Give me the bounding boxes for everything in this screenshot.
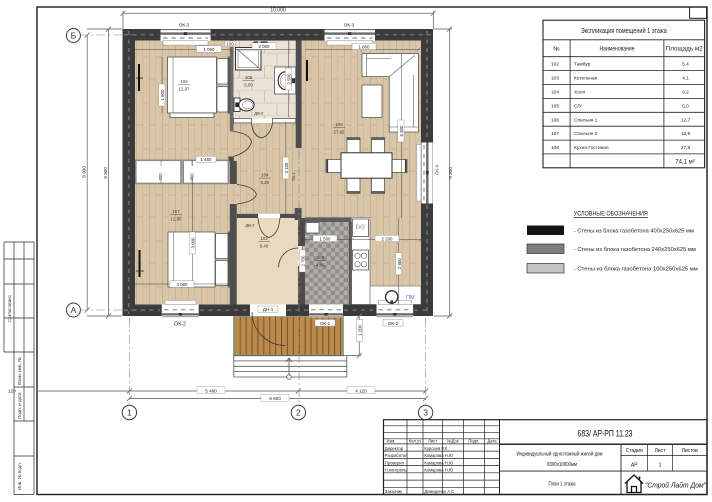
svg-text:1: 1	[127, 408, 132, 418]
svg-text:Котельная: Котельная	[574, 76, 598, 82]
svg-text:ОК-2: ОК-2	[174, 322, 186, 328]
svg-text:2 200: 2 200	[382, 236, 394, 241]
svg-text:- Стены из блока газобетона 4: - Стены из блока газобетона 400х250х625 …	[574, 228, 695, 234]
svg-text:3 060: 3 060	[177, 282, 189, 287]
svg-text:Проверил: Проверил	[385, 460, 405, 465]
svg-text:ДН-1: ДН-1	[263, 307, 274, 312]
svg-text:1 450: 1 450	[201, 157, 213, 162]
svg-text:4 120: 4 120	[355, 388, 367, 393]
svg-text:Листов: Листов	[682, 448, 699, 454]
svg-text:9 300: 9 300	[448, 167, 453, 179]
svg-text:Лист: Лист	[655, 448, 667, 454]
svg-text:3 900: 3 900	[190, 237, 195, 249]
svg-text:683/ АР-РП 11.23: 683/ АР-РП 11.23	[578, 429, 633, 439]
svg-text:Тамбур: Тамбур	[574, 62, 591, 68]
svg-text:С/У: С/У	[574, 103, 583, 109]
svg-text:2 500: 2 500	[287, 73, 292, 85]
svg-text:Холл: Холл	[574, 90, 586, 96]
svg-text:12,7: 12,7	[681, 117, 691, 123]
svg-text:27,82: 27,82	[334, 130, 346, 135]
svg-text:Экспликация помещений 1 этажа: Экспликация помещений 1 этажа	[581, 27, 667, 35]
svg-text:Комарова Н.Ю: Комарова Н.Ю	[424, 453, 453, 458]
svg-text:9 600: 9 600	[269, 396, 281, 401]
svg-text:4,05: 4,05	[316, 263, 325, 268]
svg-text:Стадия: Стадия	[626, 448, 643, 454]
svg-text:4,1: 4,1	[682, 76, 689, 82]
svg-text:6,20: 6,20	[261, 180, 270, 185]
svg-text:План 1 этажа: План 1 этажа	[549, 482, 576, 488]
svg-text:3: 3	[423, 408, 428, 418]
svg-text:103: 103	[551, 76, 559, 82]
svg-text:Согласовано: Согласовано	[7, 294, 12, 322]
svg-text:ОК-1: ОК-1	[320, 321, 331, 326]
svg-text:ПМ: ПМ	[406, 295, 415, 301]
svg-text:УСЛОВНЫЕ ОБОЗНАЧЕНИЯ: УСЛОВНЫЕ ОБОЗНАЧЕНИЯ	[574, 211, 648, 218]
svg-text:108: 108	[551, 145, 559, 151]
svg-text:104: 104	[261, 173, 269, 178]
svg-text:2 800: 2 800	[397, 258, 402, 270]
svg-text:1: 1	[659, 463, 662, 469]
svg-text:ОК-3: ОК-3	[179, 23, 190, 28]
svg-text:- Стены из блока газобетона: - Стены из блока газобетона 240х250х625 …	[574, 247, 697, 253]
svg-text:9300х10000мм: 9300х10000мм	[547, 462, 577, 468]
svg-text:12,97: 12,97	[179, 87, 191, 92]
svg-text:2 700: 2 700	[300, 255, 305, 267]
svg-text:1 200: 1 200	[358, 324, 363, 336]
svg-text:74,1 м²: 74,1 м²	[675, 160, 694, 166]
svg-text:Лист: Лист	[428, 438, 437, 443]
svg-text:Индивидуальный одноэтажный жил: Индивидуальный одноэтажный жилой дом	[517, 451, 603, 458]
svg-text:ОК-4: ОК-4	[435, 164, 440, 175]
svg-text:107: 107	[551, 131, 559, 137]
svg-text:27,8: 27,8	[681, 145, 691, 151]
svg-text:Разработал: Разработал	[385, 453, 408, 458]
svg-text:104: 104	[551, 90, 559, 96]
svg-text:Инв. № подл.: Инв. № подл.	[17, 462, 22, 490]
svg-text:1 060: 1 060	[204, 47, 216, 52]
svg-text:1 800: 1 800	[359, 44, 371, 49]
svg-text:9 300: 9 300	[103, 167, 108, 179]
svg-text:"Строй Лайт Дом": "Строй Лайт Дом"	[645, 482, 706, 490]
svg-text:2 000: 2 000	[259, 44, 271, 49]
svg-text:12,95: 12,95	[171, 217, 183, 222]
svg-text:Площадь м2: Площадь м2	[666, 47, 704, 53]
svg-text:102: 102	[260, 236, 268, 241]
svg-text:105: 105	[551, 103, 559, 109]
svg-text:Дата: Дата	[487, 438, 497, 443]
svg-text:2: 2	[296, 408, 301, 418]
svg-text:Наименование: Наименование	[600, 47, 636, 53]
svg-text:5,0: 5,0	[682, 103, 689, 109]
svg-text:№Док: №Док	[447, 438, 459, 443]
svg-text:Подп. и дата: Подп. и дата	[17, 392, 22, 419]
svg-text:ДВ-2: ДВ-2	[246, 223, 256, 228]
svg-text:Спальня 2: Спальня 2	[574, 131, 598, 137]
svg-text:108: 108	[335, 122, 343, 127]
svg-text:№: №	[553, 46, 559, 53]
svg-text:Кухня-Гостиная: Кухня-Гостиная	[574, 145, 609, 151]
svg-text:5,00: 5,00	[244, 83, 253, 88]
svg-text:АР: АР	[631, 463, 638, 469]
svg-text:Курсаев Р.Х: Курсаев Р.Х	[424, 446, 447, 451]
svg-text:5 300: 5 300	[399, 125, 404, 137]
svg-text:106: 106	[180, 79, 188, 84]
svg-text:Комарова Н.Ю: Комарова Н.Ю	[424, 468, 453, 473]
svg-text:10 000: 10 000	[270, 8, 286, 14]
svg-text:ТВ-1: ТВ-1	[291, 172, 296, 181]
svg-text:ОК-3: ОК-3	[344, 23, 355, 28]
svg-text:ДВ-2: ДВ-2	[254, 110, 264, 115]
svg-text:5 480: 5 480	[205, 388, 217, 393]
svg-text:102: 102	[551, 62, 559, 68]
svg-text:1 800: 1 800	[160, 89, 165, 101]
svg-text:107: 107	[172, 209, 180, 214]
svg-text:Н.контроль: Н.контроль	[385, 468, 408, 473]
svg-text:8 900: 8 900	[82, 166, 87, 178]
svg-text:Демиденко А.С: Демиденко А.С	[424, 489, 454, 494]
svg-text:120: 120	[8, 389, 16, 394]
svg-text:100: 100	[226, 42, 234, 47]
svg-text:Комарова Н.Ю: Комарова Н.Ю	[424, 460, 453, 465]
svg-text:12,9: 12,9	[681, 131, 691, 137]
svg-text:Спальня 1: Спальня 1	[574, 117, 598, 123]
svg-text:3 100: 3 100	[284, 162, 289, 174]
svg-text:Кол.уч: Кол.уч	[409, 438, 422, 443]
svg-text:Изм.: Изм.	[387, 438, 396, 443]
svg-text:Директор: Директор	[385, 446, 404, 451]
svg-text:6,2: 6,2	[682, 90, 689, 96]
svg-text:1 500: 1 500	[320, 236, 332, 241]
svg-text:Подп.: Подп.	[468, 438, 479, 443]
svg-text:700: 700	[158, 173, 163, 181]
svg-text:5,40: 5,40	[260, 244, 269, 249]
svg-text:106: 106	[551, 117, 559, 123]
svg-text:Б: Б	[71, 31, 77, 41]
svg-text:760: 760	[190, 173, 195, 181]
svg-text:Заказчик: Заказчик	[385, 489, 402, 494]
svg-text:5,4: 5,4	[682, 62, 689, 68]
svg-text:103: 103	[317, 255, 325, 260]
svg-text:Взам. инв. №: Взам. инв. №	[17, 357, 22, 385]
svg-text:А: А	[71, 305, 77, 315]
svg-text:105: 105	[245, 75, 253, 80]
svg-text:ОК-2: ОК-2	[388, 321, 399, 326]
svg-text:- Стены из блока газобетона: - Стены из блока газобетона 100х250х625 …	[574, 267, 699, 273]
